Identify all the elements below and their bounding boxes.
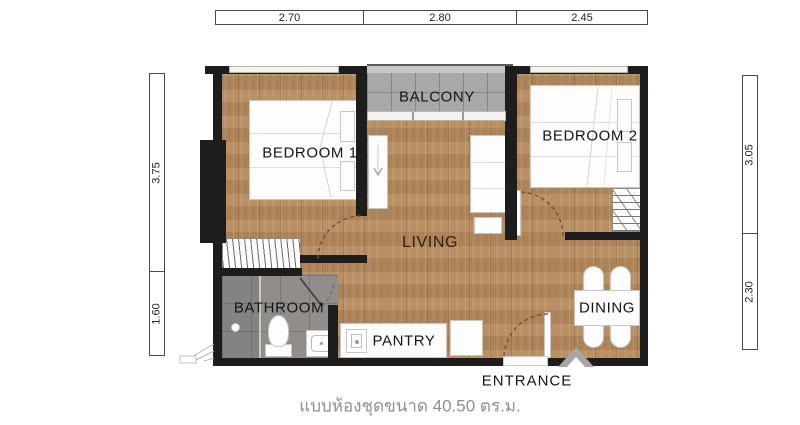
room-label-bedroom1: BEDROOM 1 <box>262 145 357 162</box>
wall-segment <box>213 268 302 276</box>
sofa-icon <box>470 135 508 213</box>
pillow-icon <box>340 161 355 191</box>
wall-segment <box>565 232 648 240</box>
wall-segment <box>213 358 503 366</box>
side-table-icon <box>474 217 502 234</box>
dimension-value: 1.60 <box>150 271 164 355</box>
dimension-value: 3.75 <box>150 74 164 271</box>
window <box>530 66 628 73</box>
wardrobe-icon <box>222 238 301 269</box>
room-label-pantry: PANTRY <box>372 333 435 350</box>
room-label-bedroom2: BEDROOM 2 <box>542 128 637 145</box>
wall-segment <box>640 66 648 366</box>
wall-segment <box>328 305 338 360</box>
room-label-dining: DINING <box>579 300 635 317</box>
wall-segment <box>356 66 367 216</box>
wall-segment <box>505 66 517 240</box>
sink-icon <box>346 329 367 353</box>
balcony-sliding-window <box>367 111 506 121</box>
dimension-value: 3.05 <box>743 76 757 233</box>
wall-segment <box>300 255 367 263</box>
exterior-step <box>180 356 196 363</box>
shower-head-icon <box>231 323 240 332</box>
pillow-icon <box>617 142 632 172</box>
shower-divider <box>259 276 261 360</box>
room-label-balcony: BALCONY <box>399 89 475 106</box>
pillow-icon <box>340 111 355 142</box>
tv-console-icon <box>368 135 388 209</box>
dimension-value: 2.70 <box>216 11 363 24</box>
caption: แบบห้องชุดขนาด 40.50 ตร.ม. <box>299 393 520 420</box>
room-label-entrance: ENTRANCE <box>482 373 573 390</box>
exterior-door-hatch <box>188 344 214 361</box>
top-dimension-bar: 2.70 2.80 2.45 <box>215 10 648 25</box>
fridge-icon <box>450 320 483 356</box>
wall-segment <box>200 140 226 243</box>
dimension-value: 2.30 <box>743 233 757 349</box>
right-dimension-bar: 3.05 2.30 <box>742 75 758 350</box>
floor-plan: 2.70 2.80 2.45 3.75 1.60 3.05 2.30 <box>0 0 800 425</box>
dimension-value: 2.80 <box>363 11 516 24</box>
room-label-living: LIVING <box>402 234 458 252</box>
dimension-value: 2.45 <box>516 11 647 24</box>
toilet-icon <box>268 315 289 347</box>
left-dimension-bar: 3.75 1.60 <box>149 73 165 356</box>
wall-segment <box>548 358 648 366</box>
shower-zone <box>222 276 259 360</box>
room-label-bathroom: BATHROOM <box>234 300 324 317</box>
entrance-threshold <box>503 356 548 366</box>
window <box>229 66 339 73</box>
door-leaf <box>544 312 551 358</box>
